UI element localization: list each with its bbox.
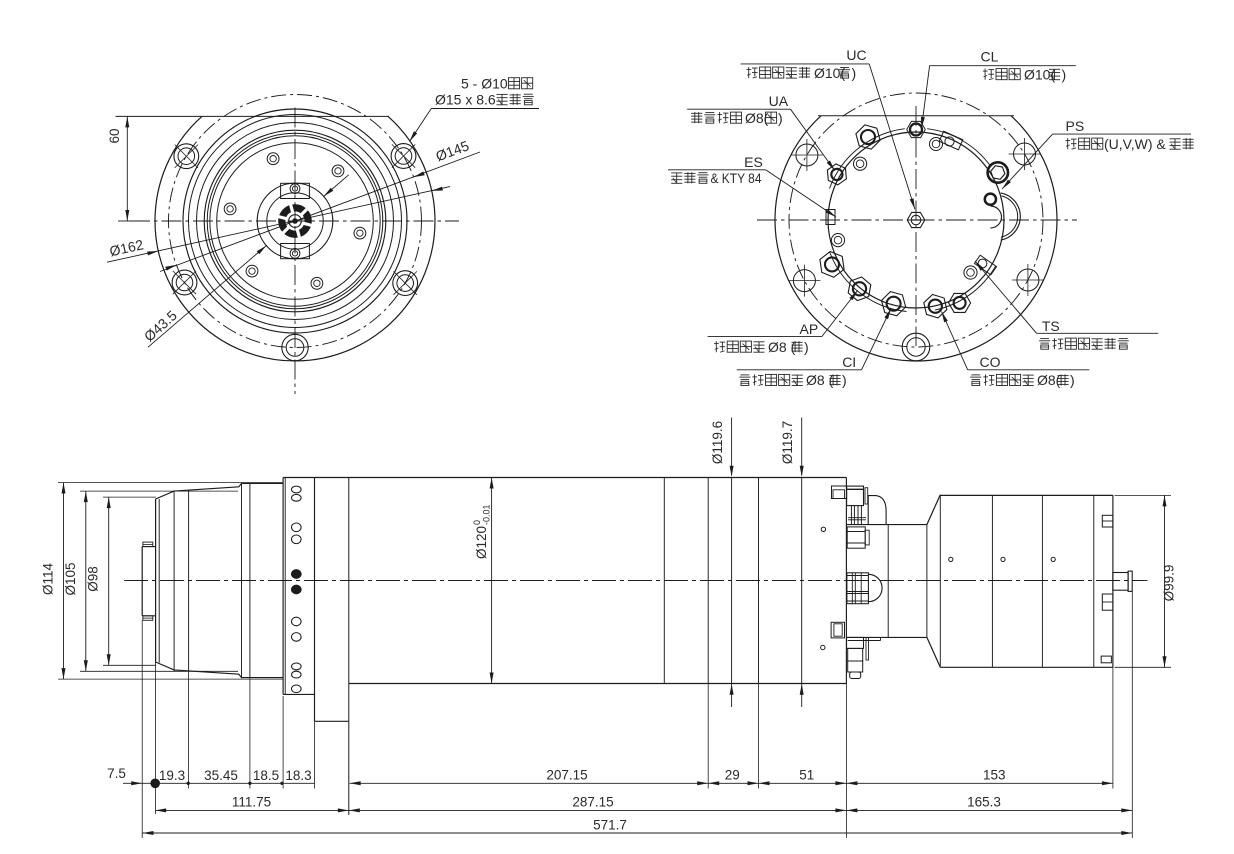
svg-text:& KTY 84: & KTY 84: [711, 170, 762, 186]
svg-text:571.7: 571.7: [593, 817, 627, 832]
svg-text:TS: TS: [1042, 318, 1060, 334]
svg-text:UC: UC: [846, 47, 866, 63]
svg-text:Ø98: Ø98: [86, 566, 101, 592]
svg-text:111.75: 111.75: [232, 794, 271, 809]
svg-text:5 - Ø10: 5 - Ø10: [461, 76, 508, 92]
svg-text:60: 60: [107, 128, 122, 143]
svg-text:Ø114: Ø114: [41, 563, 56, 596]
svg-text:Ø8 (: Ø8 (: [768, 339, 796, 355]
svg-text:(U,V,W) &: (U,V,W) &: [1104, 136, 1166, 152]
svg-text:7.5: 7.5: [107, 766, 126, 781]
svg-text:18.3: 18.3: [285, 768, 311, 783]
svg-text:-0.01: -0.01: [482, 504, 492, 525]
svg-text:287.15: 287.15: [572, 794, 613, 809]
svg-text:): ): [778, 110, 783, 126]
svg-text:165.3: 165.3: [967, 794, 1001, 809]
svg-text:0: 0: [472, 520, 482, 525]
svg-text:18.5: 18.5: [253, 768, 279, 783]
svg-text:): ): [1070, 372, 1075, 388]
svg-text:35.45: 35.45: [204, 768, 238, 783]
svg-text:CI: CI: [842, 354, 856, 370]
svg-text:29: 29: [725, 767, 740, 782]
svg-text:): ): [804, 339, 809, 355]
svg-text:): ): [1062, 66, 1067, 82]
svg-text:Ø99.9: Ø99.9: [1162, 565, 1177, 602]
svg-text:): ): [852, 65, 857, 81]
svg-text:207.15: 207.15: [546, 767, 587, 782]
svg-text:Ø119.7: Ø119.7: [780, 421, 795, 464]
svg-text:Ø119.6: Ø119.6: [710, 421, 725, 464]
svg-text:19.3: 19.3: [159, 768, 185, 783]
svg-text:ES: ES: [744, 154, 763, 170]
svg-text:Ø105: Ø105: [63, 562, 78, 595]
svg-text:Ø15 x 8.6: Ø15 x 8.6: [435, 92, 496, 108]
svg-text:PS: PS: [1066, 118, 1085, 134]
svg-text:UA: UA: [769, 93, 789, 109]
svg-text:CO: CO: [980, 354, 1001, 370]
svg-text:Ø8 (: Ø8 (: [806, 372, 834, 388]
svg-text:Ø120: Ø120: [474, 526, 489, 559]
svg-text:Ø8(: Ø8(: [1037, 372, 1061, 388]
svg-text:): ): [842, 372, 847, 388]
svg-text:CL: CL: [981, 49, 999, 65]
svg-text:51: 51: [799, 767, 814, 782]
svg-text:153: 153: [983, 767, 1006, 782]
svg-text:AP: AP: [800, 321, 819, 337]
